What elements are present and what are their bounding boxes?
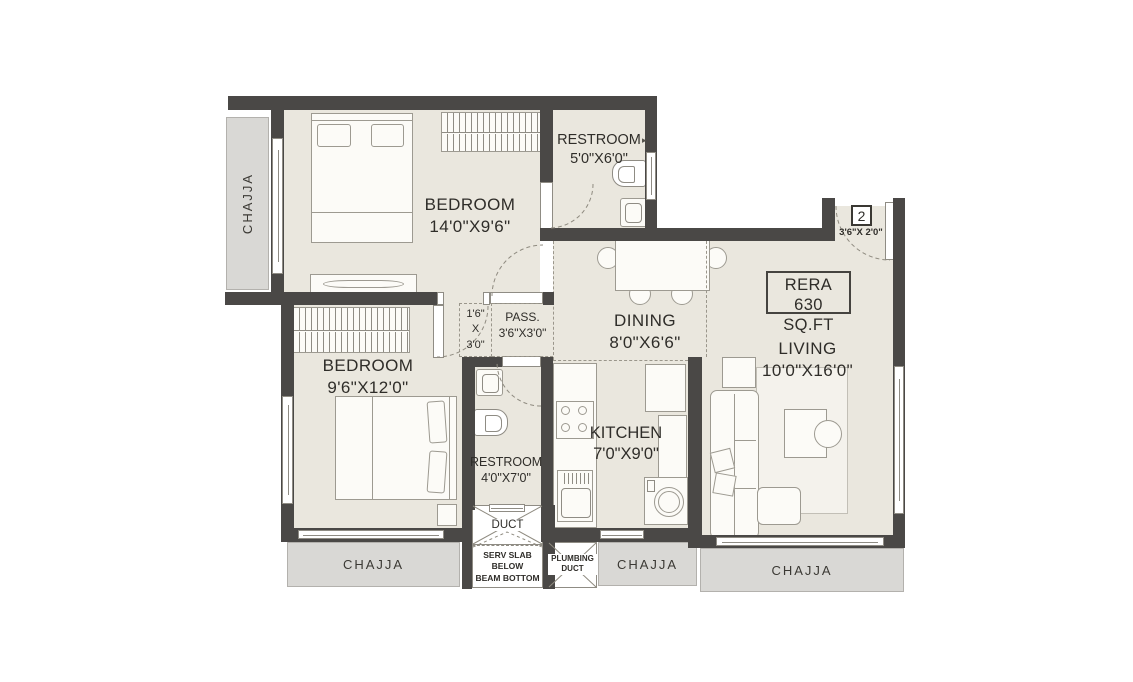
- washer-drum-inner: [658, 491, 680, 513]
- plumbing-line2: DUCT: [548, 564, 597, 574]
- window-bedroom2-bottom: [298, 530, 444, 539]
- restroom2-name: RESTROOM: [470, 454, 542, 470]
- serv-slab-label: SERV SLAB BELOW BEAM BOTTOM: [472, 550, 543, 584]
- drainboard: [561, 473, 589, 484]
- chajja-left-label: CHAJJA: [240, 173, 255, 234]
- passage-door-frame-left: [437, 292, 444, 305]
- bedroom2-label: BEDROOM 9'6"X12'0": [278, 355, 458, 399]
- serv-slab-line1: SERV SLAB: [472, 550, 543, 561]
- kitchen-sink: [557, 470, 593, 522]
- vestibule-line2: X: [459, 322, 492, 337]
- passage-name: PASS.: [492, 310, 553, 326]
- bed2-pillow-top: [427, 400, 448, 443]
- vestibule-line3: 3'0": [459, 338, 492, 353]
- fridge: [645, 364, 686, 412]
- wall-bedroom2-right: [462, 357, 475, 510]
- wardrobe2: [287, 307, 410, 353]
- entrance-number: 2: [858, 208, 866, 224]
- window-bedroom1-left: [272, 138, 283, 274]
- dining-label: DINING 8'0"X6'6": [590, 310, 700, 354]
- burner-1: [561, 406, 570, 415]
- duct-text: DUCT: [489, 519, 527, 531]
- passage-dims: 3'6"X3'0": [492, 326, 553, 342]
- dresser1-detail: [323, 280, 404, 288]
- chajja-bottom-right: CHAJJA: [700, 548, 904, 592]
- bed2-headboard: [449, 396, 457, 500]
- chajja-left: CHAJJA: [226, 117, 269, 290]
- living-dims: 10'0"X16'0": [745, 360, 870, 382]
- restroom1-label: RESTROOM 5'0"X6'0": [553, 131, 645, 169]
- restroom1-name: RESTROOM: [553, 131, 645, 150]
- restroom1-dims: 5'0"X6'0": [553, 150, 645, 169]
- serv-slab-line2: BELOW: [472, 561, 543, 572]
- bedroom2-dims: 9'6"X12'0": [278, 377, 458, 399]
- wall-top: [228, 96, 657, 110]
- kitchen-sink-basin: [561, 488, 591, 518]
- burner-2: [578, 406, 587, 415]
- sink1: [620, 198, 648, 227]
- wardrobe1: [441, 112, 545, 152]
- kitchen-name: KITCHEN: [570, 423, 682, 444]
- dining-table: [615, 236, 710, 291]
- wall-restroom2-top: [462, 357, 502, 367]
- serv-slab-line3: BEAM BOTTOM: [472, 573, 543, 584]
- entrance-dims: 3'6"X 2'0": [830, 227, 892, 239]
- chajja-bottom-center: CHAJJA: [598, 542, 697, 586]
- restroom2-dims: 4'0"X7'0": [470, 470, 542, 486]
- dining-name: DINING: [590, 310, 700, 332]
- washer-panel: [647, 480, 655, 492]
- sofa-pillow-2: [712, 472, 736, 496]
- living-name: LIVING: [745, 338, 870, 360]
- living-label: LIVING 10'0"X16'0": [745, 338, 870, 382]
- wall-restroom2-right: [541, 357, 553, 528]
- side-table: [814, 420, 842, 448]
- kitchen-top-boundary: [553, 360, 688, 361]
- wall-restroom1-left: [540, 110, 553, 182]
- plumbing-duct-label: PLUMBING DUCT: [548, 554, 597, 575]
- rera-line1: RERA: [768, 275, 849, 295]
- burner-3: [561, 423, 570, 432]
- window-restroom1-right: [646, 152, 656, 200]
- dining-living-boundary: [706, 241, 707, 357]
- kitchen-label: KITCHEN 7'0"X9'0": [570, 423, 682, 466]
- chajja-bottom-right-label: CHAJJA: [771, 563, 832, 578]
- bed1-pillow-left: [317, 124, 351, 147]
- bed1-pillow-right: [371, 124, 404, 147]
- sink1-basin: [625, 203, 642, 223]
- restroom2-door-leaf: [502, 356, 541, 367]
- rera-badge: RERA 630 SQ.FT: [766, 271, 851, 314]
- chajja-bottom-center-label: CHAJJA: [617, 557, 678, 572]
- sink2: [476, 369, 503, 396]
- wall-duct-right: [543, 505, 555, 589]
- bedroom2-door-leaf: [433, 305, 444, 358]
- entrance-number-badge: 2: [851, 205, 872, 226]
- bedroom1-name: BEDROOM: [380, 194, 560, 216]
- floor-plan: CHAJJA CHAJJA CHAJJA CHAJJA: [0, 0, 1133, 682]
- chajja-bottom-left: CHAJJA: [287, 542, 460, 587]
- bed1-headboard: [311, 113, 413, 121]
- toilet2: [474, 409, 508, 436]
- wall-bedroom-divider-stub: [543, 292, 554, 305]
- vent-arrow-icon: ▸: [642, 135, 647, 147]
- wall-bedroom-divider: [225, 292, 437, 305]
- passage-door-frame-right: [483, 292, 490, 305]
- sofa-cushion-line2: [734, 488, 756, 489]
- dresser1: [310, 274, 417, 293]
- toilet2-bowl: [485, 415, 502, 432]
- window-living-bottom: [716, 537, 884, 546]
- wall-kitchen-right: [688, 357, 702, 548]
- plumbing-line1: PLUMBING: [548, 554, 597, 564]
- rera-line2: 630 SQ.FT: [768, 295, 849, 335]
- sofa-cushion-line1: [734, 440, 756, 441]
- chajja-bottom-left-label: CHAJJA: [343, 557, 404, 572]
- sofa-chaise: [757, 487, 801, 525]
- sink2-basin: [482, 374, 499, 393]
- duct-lintel: [489, 504, 525, 512]
- nightstand2: [437, 504, 457, 526]
- window-bedroom2-left: [282, 396, 293, 504]
- vestibule-label: 1'6" X 3'0": [459, 307, 492, 353]
- dining-dims: 8'0"X6'6": [590, 332, 700, 354]
- washing-machine: [644, 477, 688, 525]
- kitchen-dims: 7'0"X9'0": [570, 444, 682, 465]
- bedroom2-name: BEDROOM: [278, 355, 458, 377]
- duct-label: DUCT: [472, 518, 543, 533]
- restroom2-label: RESTROOM 4'0"X7'0": [470, 454, 542, 487]
- wall-duct-left: [462, 505, 472, 589]
- window-living-right: [894, 366, 904, 514]
- bedroom1-dims: 14'0"X9'6": [380, 216, 560, 238]
- bed2-blanket: [335, 396, 373, 500]
- bed2-pillow-bottom: [427, 450, 448, 493]
- bedroom1-label: BEDROOM 14'0"X9'6": [380, 194, 560, 238]
- vestibule-line1: 1'6": [459, 307, 492, 322]
- passage-label: PASS. 3'6"X3'0": [492, 310, 553, 341]
- wall-mid-horizontal: [540, 228, 835, 241]
- window-kitchen-bottom: [600, 530, 644, 539]
